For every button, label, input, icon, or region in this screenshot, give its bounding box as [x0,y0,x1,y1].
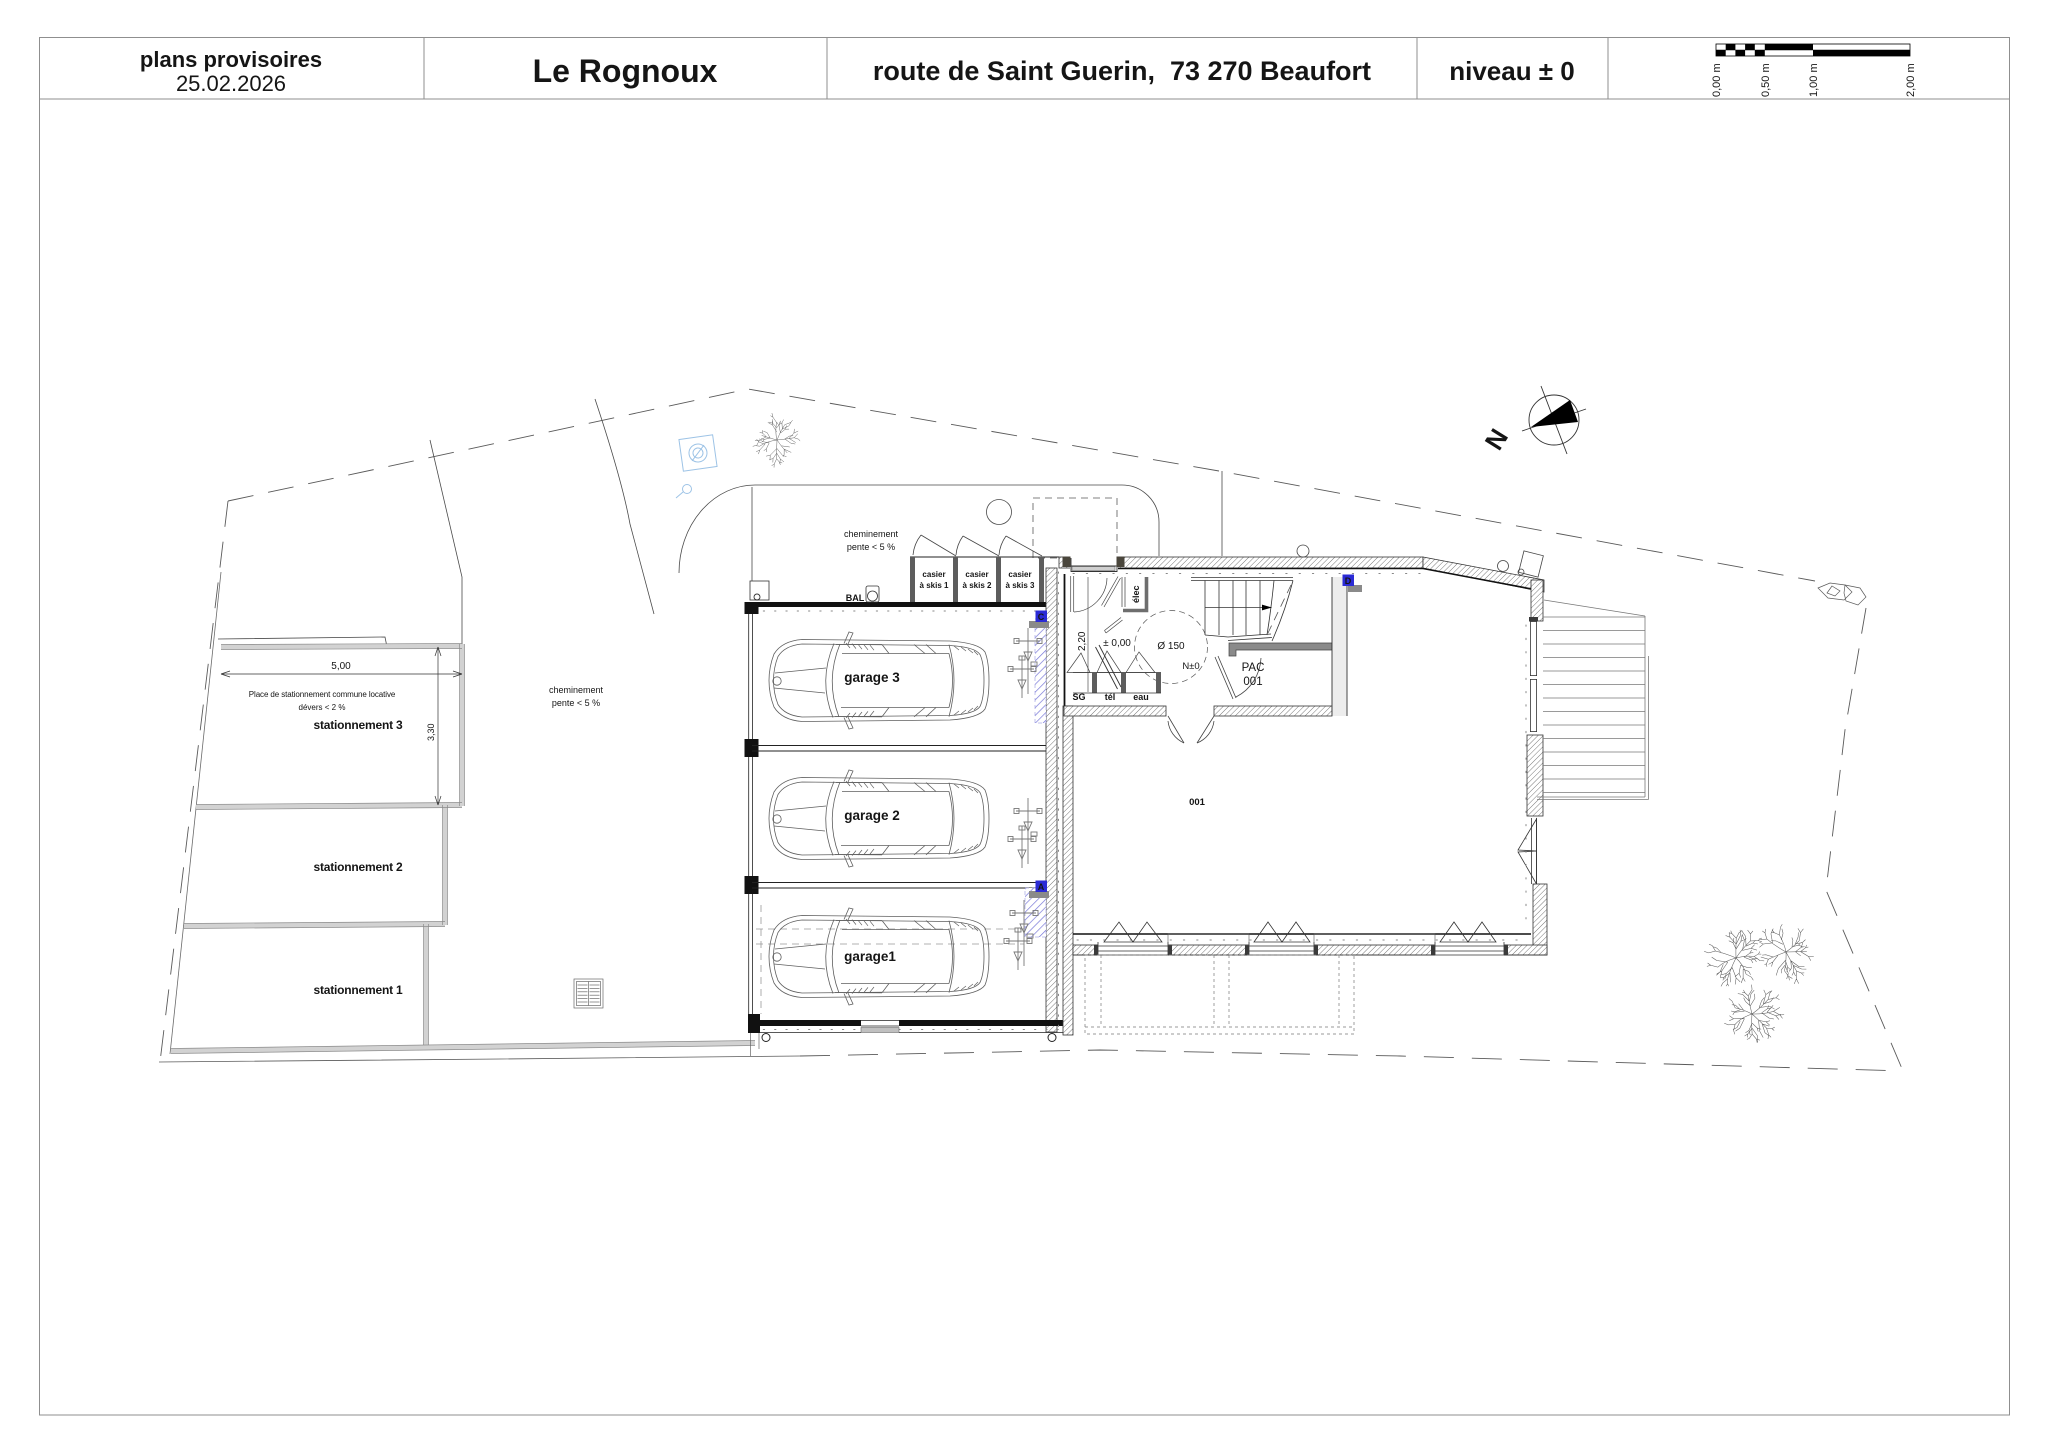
svg-text:0,50 m: 0,50 m [1760,63,1772,97]
svg-text:2,20: 2,20 [1077,631,1088,651]
svg-text:PAC: PAC [1242,662,1265,674]
svg-text:garage 3: garage 3 [844,670,900,685]
svg-text:route de Saint Guerin, 73 270: route de Saint Guerin, 73 270 Beaufort [873,56,1371,86]
svg-text:à skis 3: à skis 3 [1006,581,1035,590]
svg-text:N±0: N±0 [1182,661,1199,672]
svg-text:élec: élec [1131,585,1141,603]
svg-text:pente < 5 %: pente < 5 % [552,698,600,708]
svg-text:0,00 m: 0,00 m [1711,63,1723,97]
svg-text:Place de stationnement commune: Place de stationnement commune locative [249,690,396,699]
svg-text:2,00 m: 2,00 m [1905,63,1917,97]
svg-text:stationnement 3: stationnement 3 [313,718,403,732]
svg-text:A: A [1038,882,1045,892]
svg-text:pente < 5 %: pente < 5 % [847,542,895,552]
svg-text:3,30: 3,30 [426,723,436,741]
svg-text:niveau ± 0: niveau ± 0 [1449,56,1575,86]
svg-text:SG: SG [1072,692,1085,702]
svg-text:001: 001 [1189,797,1206,808]
svg-text:D: D [1345,576,1352,586]
svg-text:eau: eau [1133,692,1149,702]
svg-text:stationnement 2: stationnement 2 [313,860,403,874]
svg-text:Le Rognoux: Le Rognoux [533,53,718,89]
svg-text:à skis 2: à skis 2 [963,581,992,590]
svg-text:tél: tél [1105,692,1116,702]
svg-text:garage 2: garage 2 [844,808,900,823]
svg-text:C: C [1038,612,1045,622]
svg-text:dévers < 2 %: dévers < 2 % [299,703,346,712]
svg-text:5,00: 5,00 [331,661,351,672]
svg-text:stationnement 1: stationnement 1 [313,983,403,997]
svg-text:± 0,00: ± 0,00 [1103,638,1131,649]
svg-text:cheminement: cheminement [844,529,899,539]
svg-text:casier: casier [922,570,945,579]
svg-text:casier: casier [1008,570,1031,579]
svg-text:à skis 1: à skis 1 [920,581,949,590]
svg-text:garage1: garage1 [844,949,896,964]
svg-text:1,00 m: 1,00 m [1808,63,1820,97]
svg-text:Ø 150: Ø 150 [1157,641,1185,652]
svg-text:BAL: BAL [846,593,865,603]
svg-text:25.02.2026: 25.02.2026 [176,71,286,96]
svg-text:001: 001 [1243,676,1262,688]
svg-text:casier: casier [965,570,988,579]
svg-text:plans provisoires: plans provisoires [140,47,322,72]
svg-text:cheminement: cheminement [549,685,604,695]
